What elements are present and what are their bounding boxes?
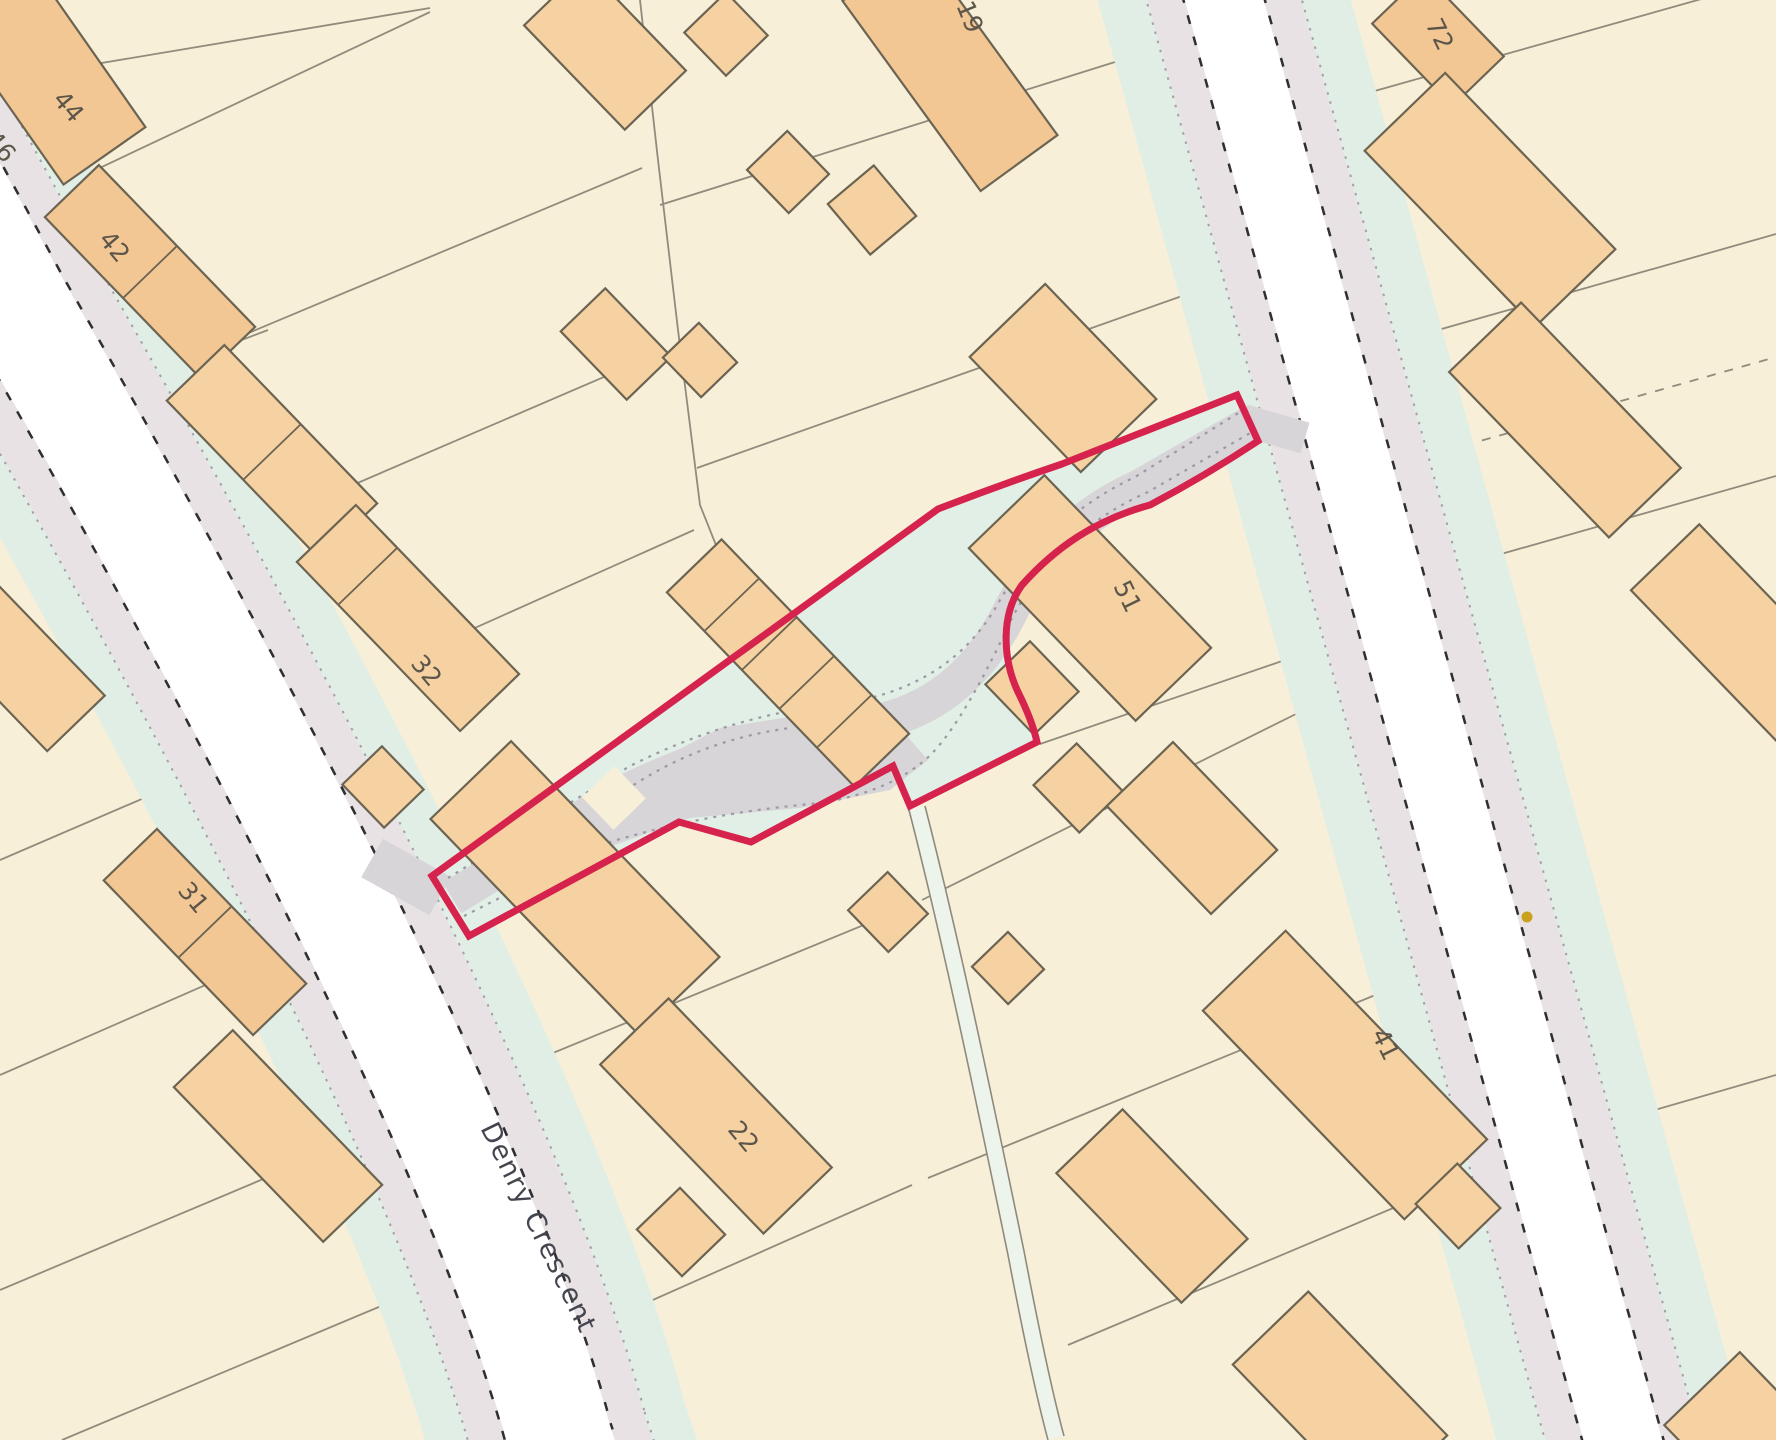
poi-dot <box>1522 912 1533 923</box>
poi-point-feature <box>1522 912 1533 923</box>
map-viewport[interactable]: 44464231322219517241Denry Crescent <box>0 0 1776 1440</box>
location-plan-map[interactable]: 44464231322219517241Denry Crescent <box>0 0 1776 1440</box>
